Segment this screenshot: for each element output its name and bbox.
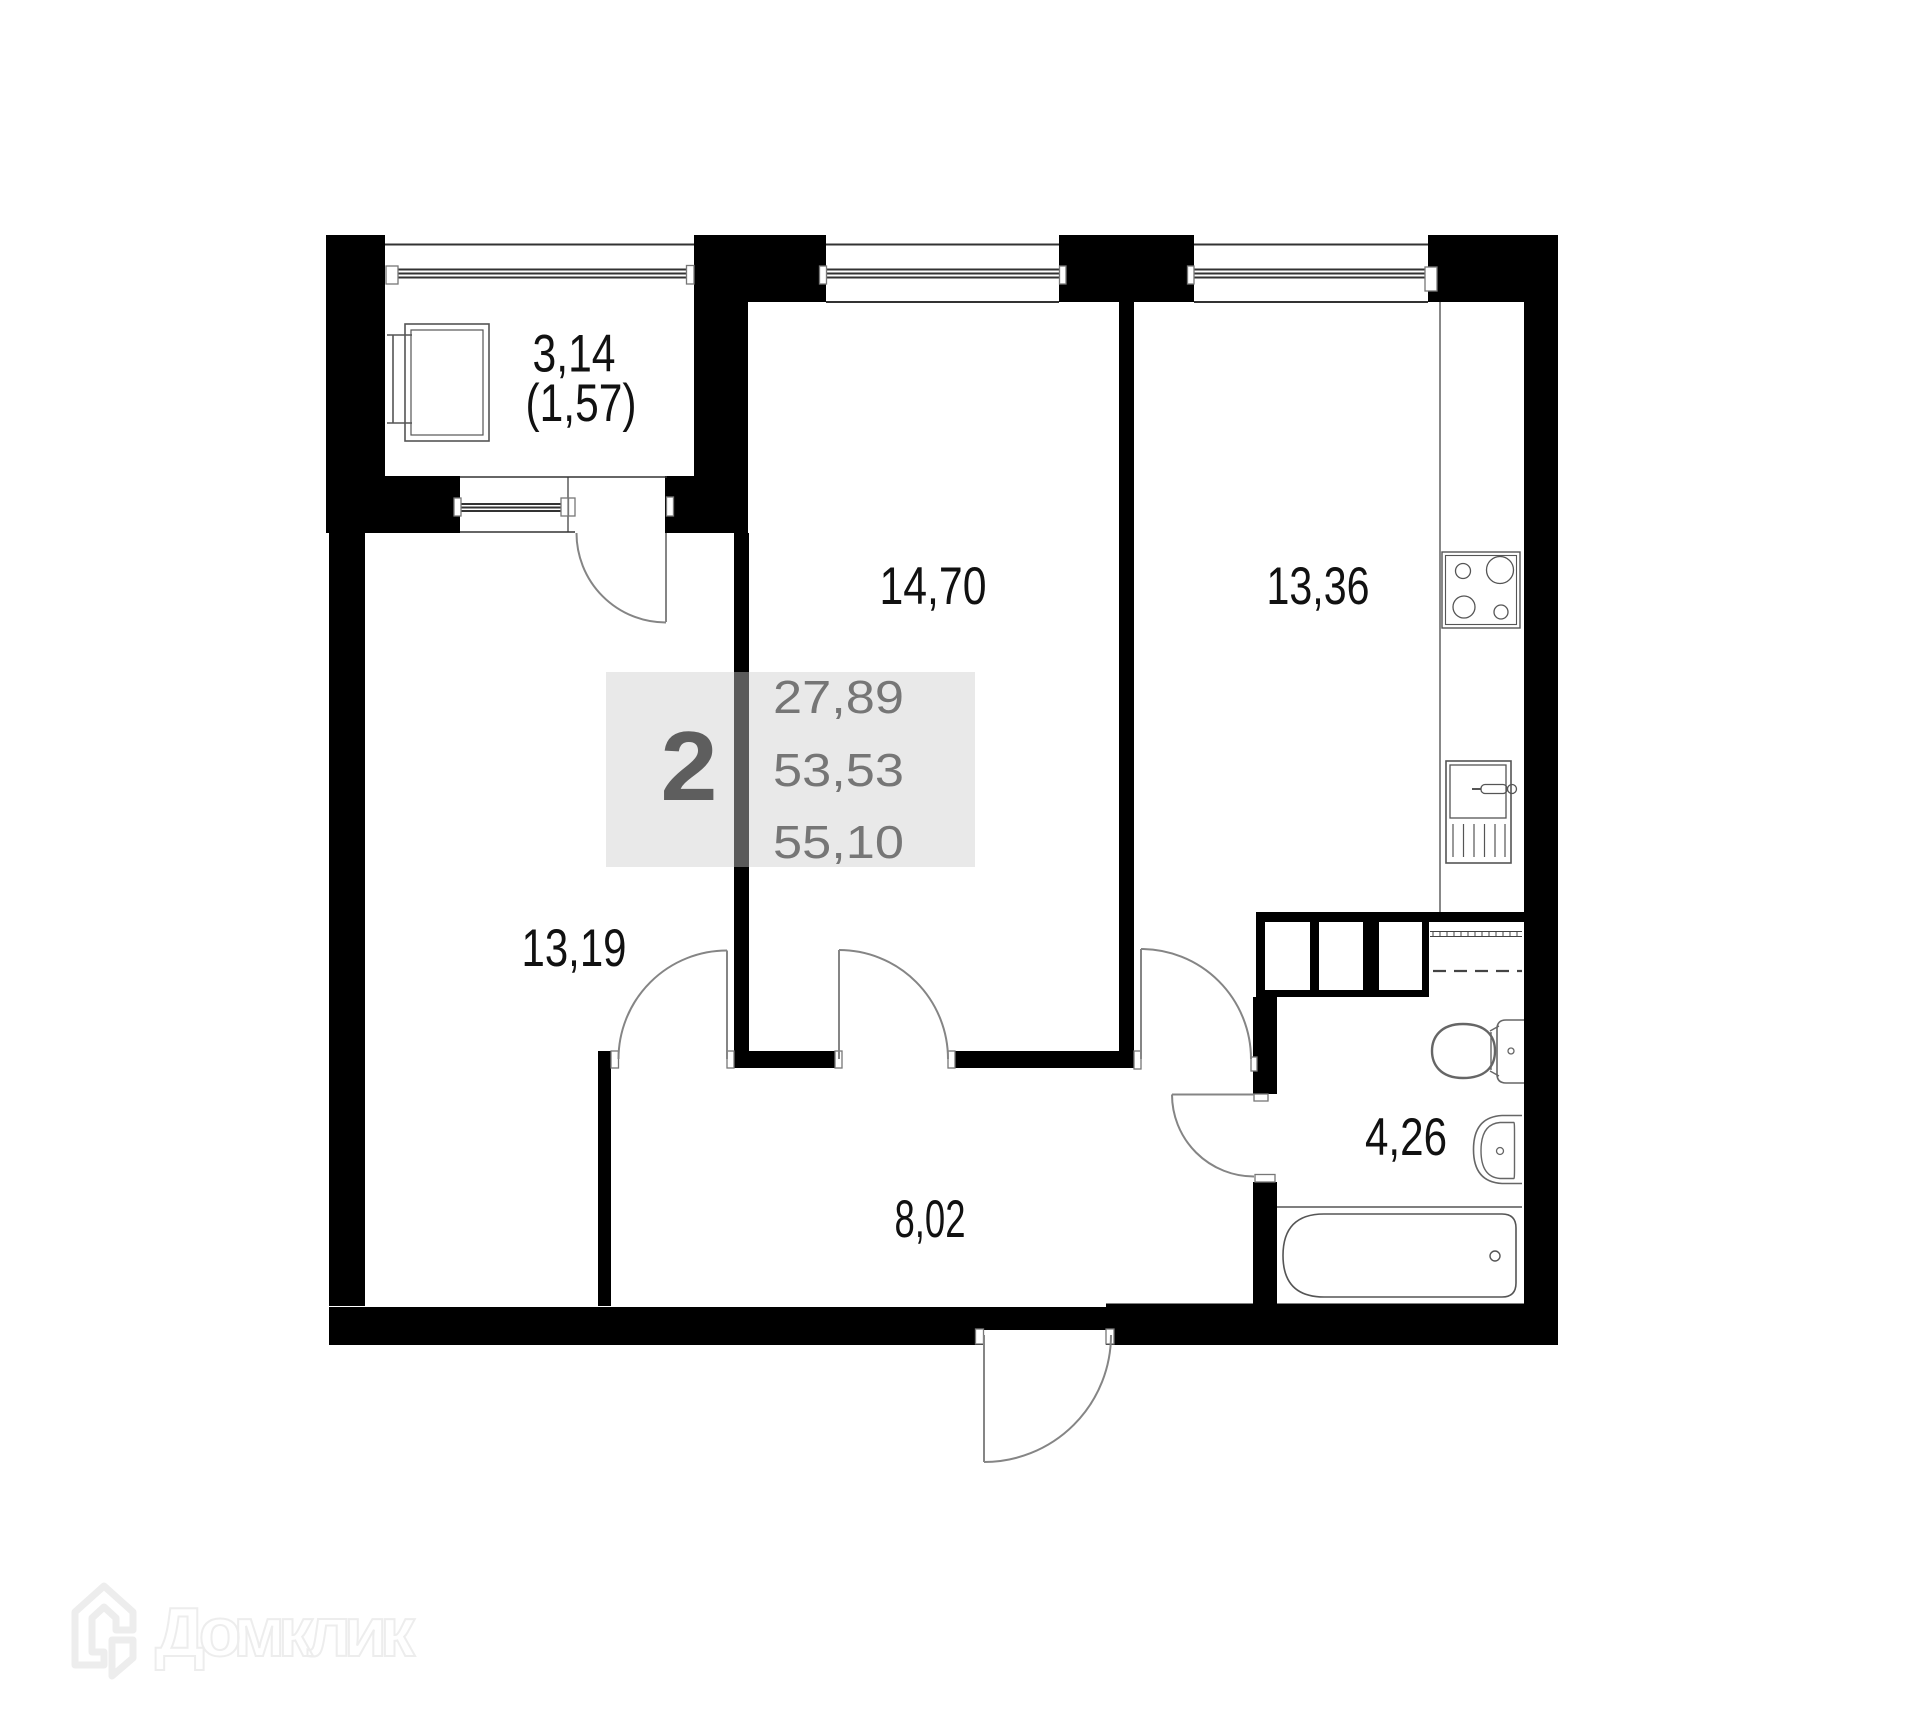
svg-text:Домклик: Домклик (155, 1593, 416, 1671)
svg-text:(1,57): (1,57) (526, 374, 637, 433)
svg-text:13,36: 13,36 (1267, 557, 1370, 616)
svg-text:53,53: 53,53 (773, 744, 904, 796)
svg-text:14,70: 14,70 (880, 557, 987, 616)
svg-text:27,89: 27,89 (773, 671, 904, 723)
svg-text:13,19: 13,19 (522, 919, 627, 978)
svg-text:8,02: 8,02 (895, 1190, 966, 1249)
svg-text:55,10: 55,10 (773, 816, 904, 868)
svg-text:4,26: 4,26 (1365, 1108, 1447, 1167)
svg-text:2: 2 (661, 711, 718, 821)
